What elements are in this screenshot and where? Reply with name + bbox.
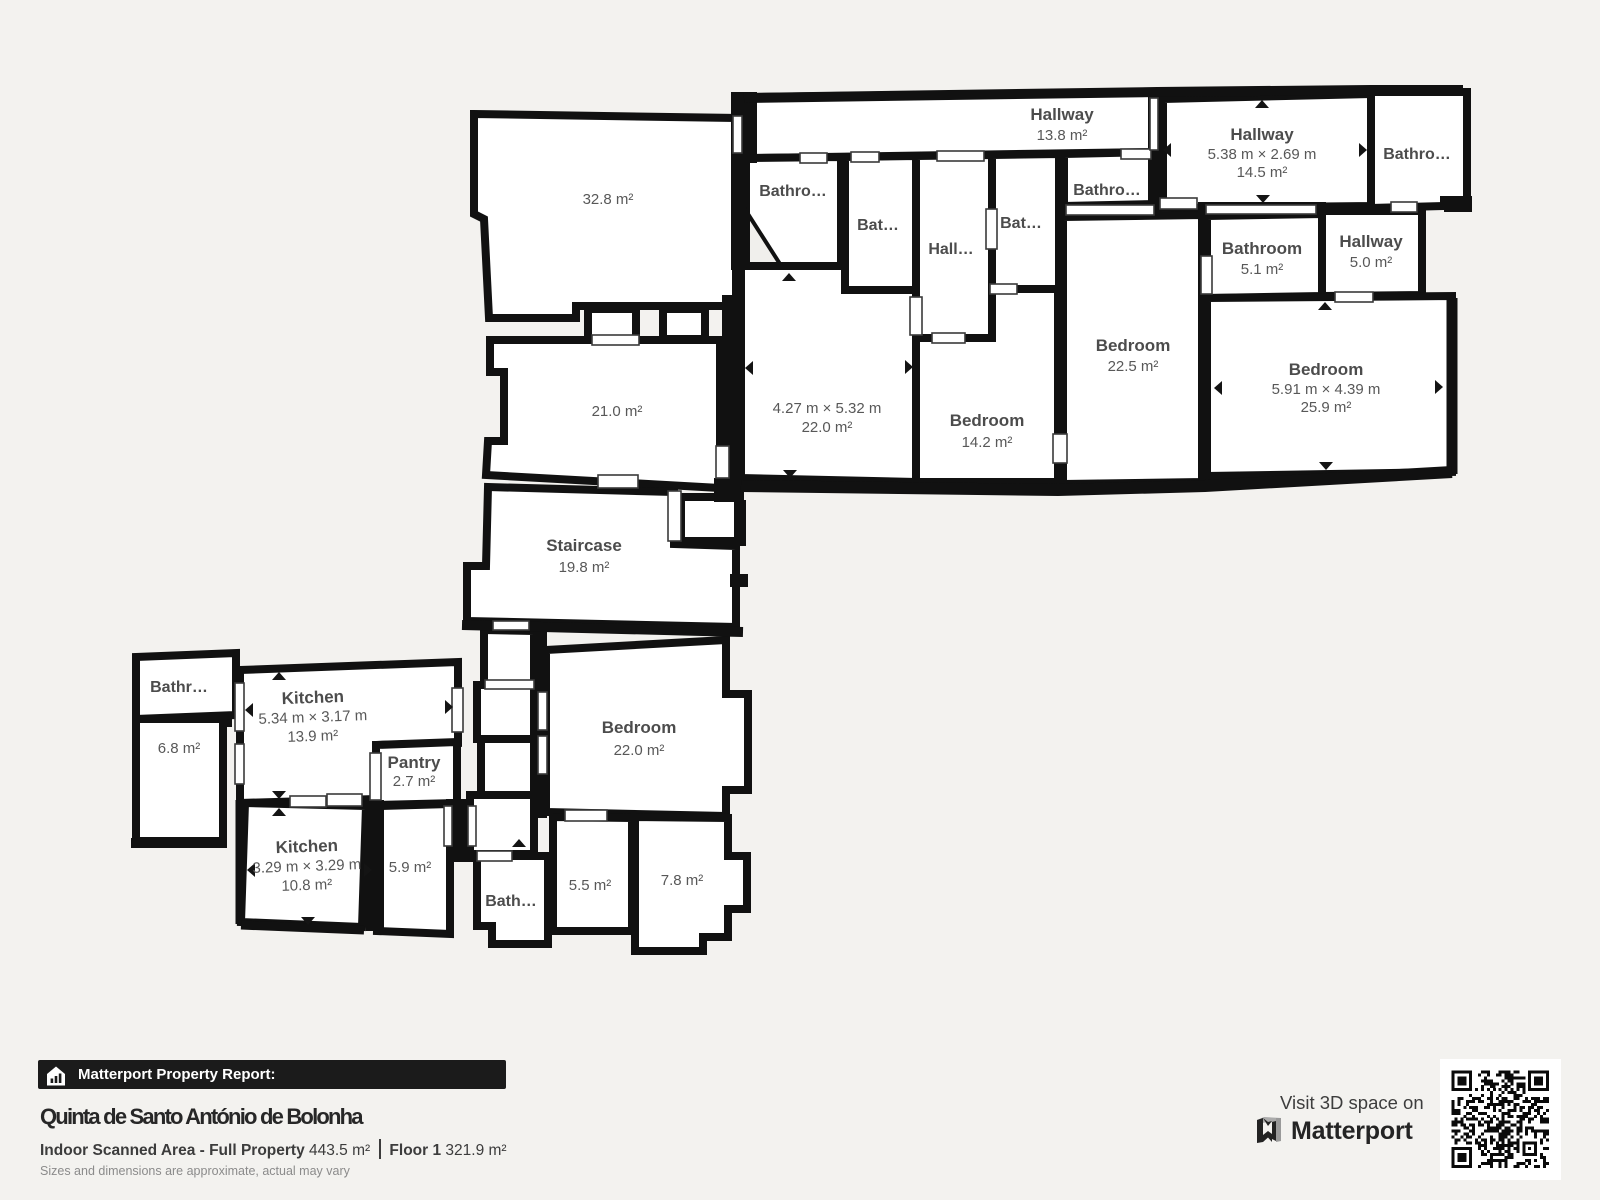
svg-text:19.8 m²: 19.8 m² xyxy=(559,559,610,576)
svg-text:25.9 m²: 25.9 m² xyxy=(1301,399,1352,416)
svg-text:10.8 m²: 10.8 m² xyxy=(281,876,332,895)
svg-text:Bathro…: Bathro… xyxy=(759,183,827,200)
svg-text:Bat…: Bat… xyxy=(857,217,899,234)
svg-text:7.8 m²: 7.8 m² xyxy=(661,872,704,889)
svg-text:Kitchen: Kitchen xyxy=(281,687,344,708)
svg-text:13.9 m²: 13.9 m² xyxy=(287,727,338,746)
svg-text:Bathro…: Bathro… xyxy=(1383,146,1451,163)
svg-text:5.5 m²: 5.5 m² xyxy=(569,877,612,894)
svg-text:Staircase: Staircase xyxy=(546,536,622,555)
svg-text:Bedroom: Bedroom xyxy=(1096,336,1171,355)
svg-text:21.0 m²: 21.0 m² xyxy=(592,403,643,420)
svg-text:6.8 m²: 6.8 m² xyxy=(158,740,201,757)
svg-text:Pantry: Pantry xyxy=(388,753,441,772)
svg-text:Hallway: Hallway xyxy=(1030,105,1094,124)
svg-text:5.1 m²: 5.1 m² xyxy=(1241,261,1284,278)
svg-text:22.5 m²: 22.5 m² xyxy=(1108,358,1159,375)
svg-text:Bathroom: Bathroom xyxy=(1222,239,1302,258)
svg-text:Bath…: Bath… xyxy=(485,893,537,910)
svg-text:22.0 m²: 22.0 m² xyxy=(614,742,665,759)
svg-text:Bathr…: Bathr… xyxy=(150,679,208,696)
svg-text:13.8 m²: 13.8 m² xyxy=(1037,127,1088,144)
svg-text:Bat…: Bat… xyxy=(1000,215,1042,232)
svg-text:22.0 m²: 22.0 m² xyxy=(802,419,853,436)
svg-text:Hallway: Hallway xyxy=(1230,125,1294,144)
svg-text:5.0 m²: 5.0 m² xyxy=(1350,254,1393,271)
svg-text:Kitchen: Kitchen xyxy=(275,836,338,857)
svg-text:Hallway: Hallway xyxy=(1339,232,1403,251)
svg-text:Bathro…: Bathro… xyxy=(1073,182,1141,199)
svg-text:Bedroom: Bedroom xyxy=(950,411,1025,430)
svg-text:4.27 m × 5.32 m: 4.27 m × 5.32 m xyxy=(773,400,882,417)
svg-text:2.7 m²: 2.7 m² xyxy=(393,773,436,790)
svg-text:14.5 m²: 14.5 m² xyxy=(1237,164,1288,181)
svg-text:Bedroom: Bedroom xyxy=(1289,360,1364,379)
svg-text:Hall…: Hall… xyxy=(928,241,973,258)
svg-text:14.2 m²: 14.2 m² xyxy=(962,434,1013,451)
svg-text:32.8 m²: 32.8 m² xyxy=(583,191,634,208)
svg-text:Bedroom: Bedroom xyxy=(602,718,677,737)
svg-text:5.38 m × 2.69 m: 5.38 m × 2.69 m xyxy=(1208,146,1317,163)
svg-text:5.9 m²: 5.9 m² xyxy=(389,859,432,876)
svg-text:5.91 m × 4.39 m: 5.91 m × 4.39 m xyxy=(1272,381,1381,398)
